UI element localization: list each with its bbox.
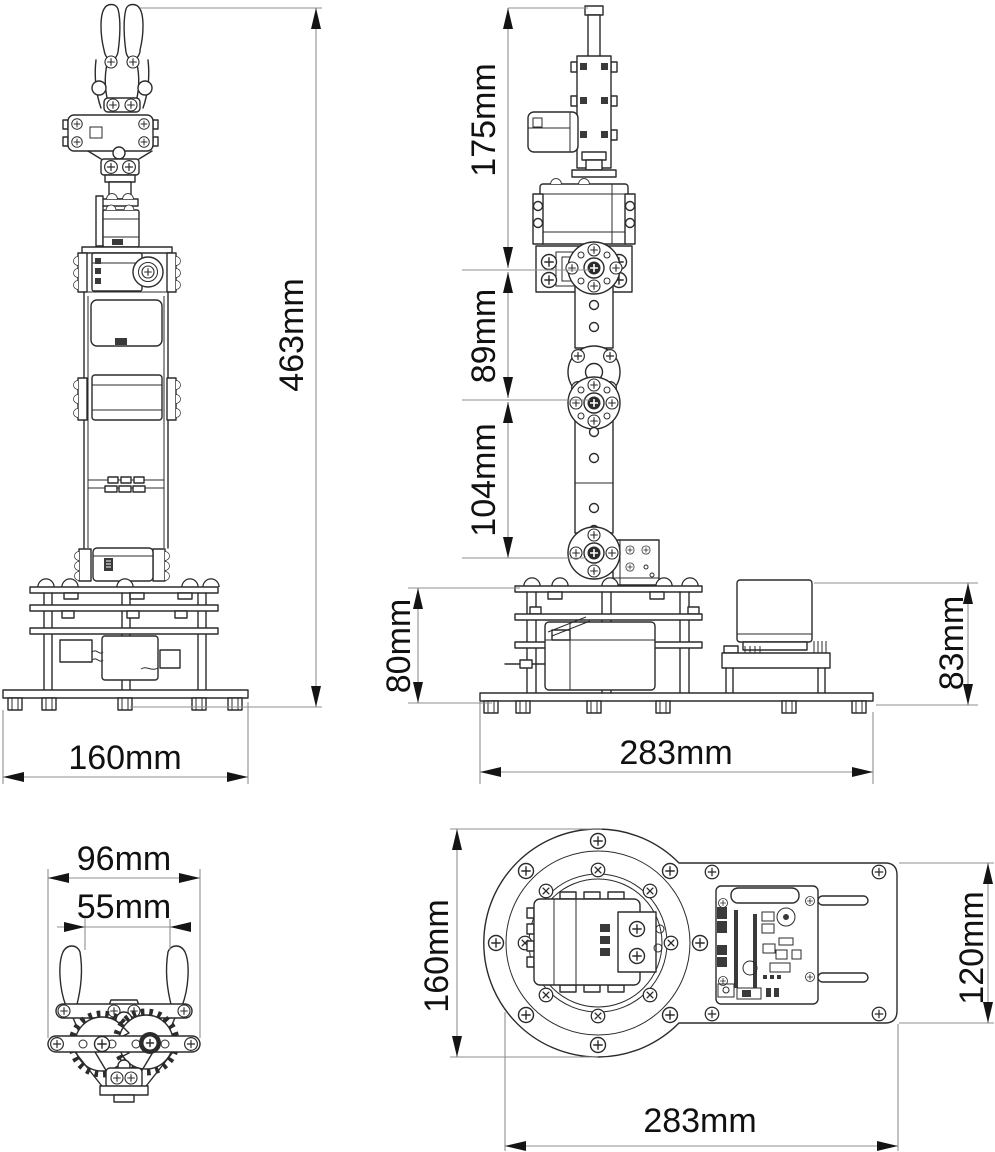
dim-front-height: 463mm xyxy=(130,8,322,707)
dimension-diagram-page: 463mm 160mm 175mm 89mm 104mm xyxy=(0,0,995,1152)
side-view xyxy=(480,6,873,713)
battery-box-side xyxy=(737,580,812,650)
upper-arm-servo-bracket xyxy=(74,247,181,292)
lower-arm-link-side xyxy=(568,377,659,585)
dim-top-plate-width: 120mm xyxy=(899,863,994,1023)
dim-gripper-opening-width: 55mm xyxy=(57,888,191,950)
dim-side-base-height: 80mm xyxy=(380,588,520,703)
dim-label-gripper-opening-width: 55mm xyxy=(77,888,171,926)
base-servo-front xyxy=(75,548,170,581)
plate-slot-upper xyxy=(818,896,868,905)
gripper-view xyxy=(48,946,200,1102)
dim-label-front-height: 463mm xyxy=(273,278,311,391)
wrist-servo-assembly xyxy=(63,115,158,247)
dim-label-front-base-width: 160mm xyxy=(68,739,181,777)
dim-side-controller-height: 83mm xyxy=(814,583,978,705)
dim-label-side-base-height: 80mm xyxy=(380,599,418,693)
base-front xyxy=(3,579,248,710)
dim-label-side-base-length: 283mm xyxy=(619,734,732,772)
robot-arm-dimension-diagram: 463mm 160mm 175mm 89mm 104mm xyxy=(0,0,995,1152)
dim-label-side-controller-height: 83mm xyxy=(933,596,971,690)
base-side xyxy=(480,578,873,713)
front-view xyxy=(3,5,248,711)
top-view xyxy=(484,829,897,1057)
plate-slot-lower xyxy=(818,973,868,982)
gripper-side xyxy=(528,6,617,177)
controller-board-top xyxy=(716,886,818,1004)
dim-label-side-middle-segment: 89mm xyxy=(465,289,503,383)
dim-label-top-overall-length: 283mm xyxy=(643,1102,756,1140)
gripper-fingers-closed xyxy=(92,5,152,113)
dim-front-base-width: 160mm xyxy=(3,702,248,784)
dim-label-side-upper-segment: 175mm xyxy=(465,63,503,176)
dim-label-top-plate-depth: 160mm xyxy=(418,899,456,1012)
dim-label-top-plate-width: 120mm xyxy=(953,891,991,1004)
dim-label-gripper-outer-width: 96mm xyxy=(77,840,171,878)
dim-side-base-length: 283mm xyxy=(480,702,873,784)
dim-side-lower-segment: 104mm xyxy=(462,402,586,558)
arm-channel xyxy=(74,292,181,548)
dim-label-side-lower-segment: 104mm xyxy=(465,423,503,536)
upper-arm-link-side xyxy=(566,242,622,398)
